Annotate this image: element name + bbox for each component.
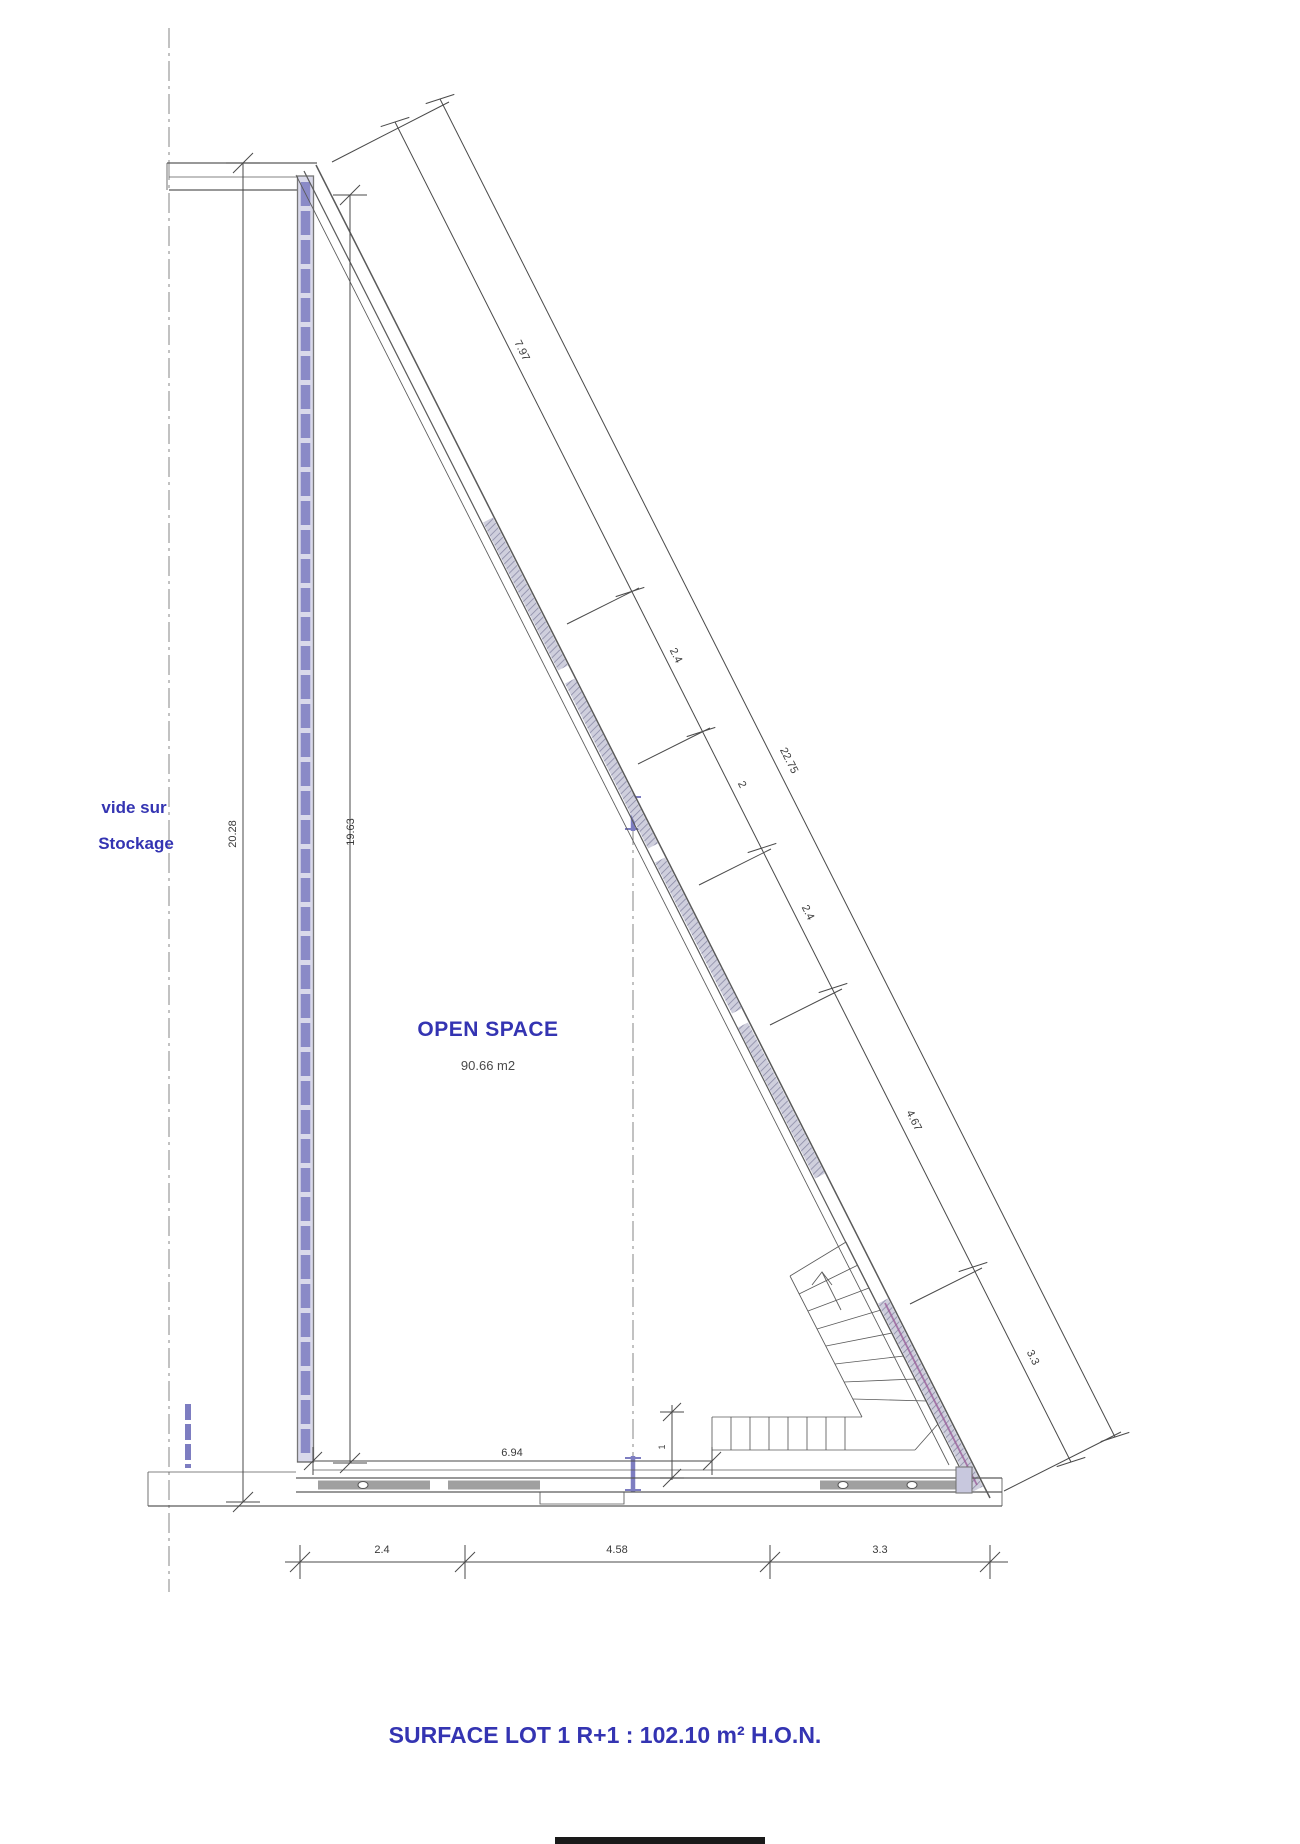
dim-label-4-67: 4.67: [903, 1108, 923, 1133]
void-label-line1: vide sur: [101, 798, 167, 817]
void-annotation: vide sur Stockage: [98, 798, 174, 853]
dim-label-bottom-2-4: 2.4: [374, 1544, 389, 1556]
corner-glazing-block: [956, 1467, 972, 1493]
dim-vertical-outer: 20.28: [226, 153, 260, 1512]
surface-total-label: SURFACE LOT 1 R+1 : 102.10 m² H.O.N.: [389, 1722, 822, 1748]
dim-label-bottom-4-58: 4.58: [606, 1544, 627, 1556]
dim-label-3-3-diag: 3.3: [1024, 1348, 1042, 1367]
dim-label-20-28: 20.28: [227, 820, 239, 848]
top-wall-stub: [167, 163, 317, 190]
dim-stair-offset: 1: [657, 1403, 684, 1487]
title-block-edge: [555, 1837, 765, 1844]
dim-label-stair-offset: 1: [657, 1444, 667, 1449]
dim-label-2-4-b: 2.4: [799, 903, 817, 922]
dim-label-bottom-3-3: 3.3: [872, 1544, 887, 1556]
west-glazed-wall: [297, 176, 314, 1462]
dim-diagonal: 7.97 2.4 2 2.4 4.67 3.3 22.75: [332, 94, 1129, 1491]
floor-plan-canvas: 20.28 19.63 7.97 2.4 2: [0, 0, 1300, 1844]
open-space-annotation: OPEN SPACE 90.66 m2: [417, 1018, 558, 1073]
floor-plan-page: 20.28 19.63 7.97 2.4 2: [0, 0, 1300, 1844]
room-label-open-space: OPEN SPACE: [417, 1018, 558, 1041]
south-wall: [148, 1467, 1002, 1506]
void-label-line2: Stockage: [98, 834, 174, 853]
surface-total-annotation: SURFACE LOT 1 R+1 : 102.10 m² H.O.N.: [389, 1722, 822, 1748]
dim-label-22-75: 22.75: [777, 746, 800, 776]
dim-interior-6-94: 6.94: [304, 1447, 721, 1475]
dim-label-19-63: 19.63: [345, 818, 357, 846]
dim-bottom: 2.4 4.58 3.3: [285, 1544, 1008, 1579]
dim-label-2-4-a: 2.4: [667, 646, 685, 665]
dim-label-2: 2: [735, 779, 748, 790]
diagonal-wall: [296, 165, 990, 1498]
room-area-open-space: 90.66 m2: [461, 1058, 515, 1073]
dim-vertical-inner: 19.63: [333, 185, 367, 1473]
dim-label-6-94: 6.94: [501, 1447, 522, 1459]
centerline-middle: [625, 792, 641, 1492]
